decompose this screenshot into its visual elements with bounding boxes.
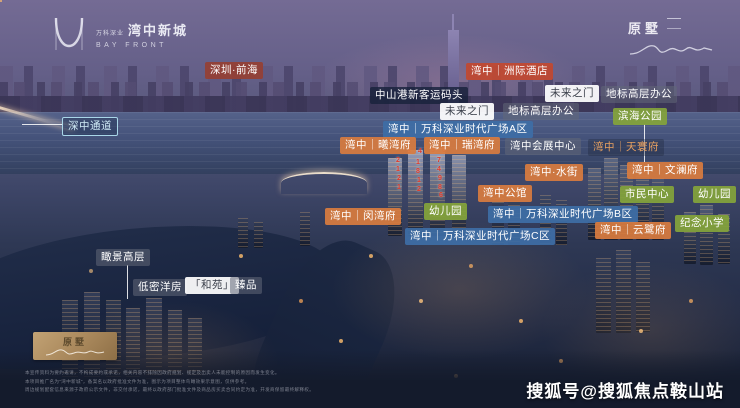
- yuanshu-gold-badge: 原墅: [33, 332, 117, 360]
- map-label: 瞰景高层: [96, 249, 150, 266]
- map-label: 湾中｜文澜府: [627, 162, 703, 179]
- disclaimer-line: 周边规划配套信息来源于政府公示文件，非交付承诺，最终以政府部门批准文件及商品房买…: [25, 387, 314, 393]
- building-number: 1: [416, 159, 420, 166]
- map-label: 市民中心: [620, 186, 674, 203]
- brand-group-name: 万科深业: [96, 28, 124, 37]
- building-number: 1: [397, 184, 401, 191]
- building-number: 7: [437, 157, 441, 164]
- map-label: 地标高层办公: [503, 103, 579, 120]
- tower-block: [616, 250, 631, 333]
- aerial-masterplan-rendering: 万科深业 湾中新城 BAY FRONT 原墅 深圳·前海中山港新客运码头湾中｜洲…: [0, 0, 740, 408]
- building-number: 2: [397, 175, 401, 182]
- map-label: 未来之门: [545, 85, 599, 102]
- building-number: 4: [418, 148, 422, 155]
- building-number: 1: [417, 177, 421, 184]
- map-label: 湾中会展中心: [505, 138, 581, 155]
- lit-bridge-arc: [281, 172, 367, 194]
- building-number: 6: [439, 192, 443, 199]
- map-label: 湾中｜瑞湾府: [424, 137, 500, 154]
- yuanshu-title: 原墅: [628, 21, 662, 36]
- map-label: 低密洋房: [133, 279, 187, 296]
- map-label: 湾中｜万科深业时代广场A区: [383, 121, 533, 138]
- brand-english-name: BAY FRONT: [96, 42, 188, 49]
- tower-block: [636, 262, 650, 332]
- map-label: 幼儿园: [693, 186, 736, 203]
- building-number: 4: [437, 166, 441, 173]
- tower-block: [238, 218, 248, 248]
- map-label: 湾中｜云鹭府: [595, 222, 671, 239]
- bridge-arch-icon: [52, 16, 86, 52]
- map-label: 未来之门: [440, 103, 494, 120]
- map-label: 湾中公馆: [478, 185, 532, 202]
- tower-block: [452, 155, 466, 235]
- tower-block: [700, 205, 713, 265]
- disclaimer-line: 本宣传资料为要约邀请，不构成要约或承诺，相关内容不排除因政府规划、规定及出卖人未…: [25, 370, 280, 376]
- map-label: 湾中｜万科深业时代广场C区: [405, 228, 555, 245]
- tower-block: [596, 258, 611, 333]
- building-number: 9: [438, 175, 442, 182]
- map-label: 滨海公园: [613, 108, 667, 125]
- building-number: 8: [416, 168, 420, 175]
- signature-swash-icon: [628, 38, 714, 60]
- map-label: 纪念小学: [675, 215, 729, 232]
- map-label: 湾中｜万科深业时代广场B区: [488, 206, 638, 223]
- map-label: 中山港新客运码头: [370, 87, 468, 104]
- sohu-watermark: 搜狐号@搜狐焦点鞍山站: [526, 377, 724, 402]
- tower-block: [300, 212, 310, 246]
- map-label: 臻品: [230, 277, 262, 294]
- building-number: 2: [417, 186, 421, 193]
- map-label: 地标高层办公: [601, 86, 677, 103]
- building-number: 1: [396, 166, 400, 173]
- tower-block: [254, 222, 263, 248]
- disclaimer-line: 本项目推广名为"湾中新城"，备案名以政府批准文件为准，图示为项目整体鸟瞰效果示意…: [25, 379, 250, 385]
- map-label: 深圳·前海: [205, 62, 263, 79]
- map-label: 湾中｜洲际酒店: [466, 63, 553, 80]
- leader-line: [22, 124, 62, 125]
- building-number: 8: [438, 184, 442, 191]
- map-label: 湾中｜闵湾府: [325, 208, 401, 225]
- leader-line: [127, 265, 128, 299]
- brand-project-name: 湾中新城: [128, 20, 188, 39]
- brand-logo-bayfront: 万科深业 湾中新城 BAY FRONT: [52, 16, 188, 52]
- yuanshu-seal-mark: [667, 18, 681, 29]
- map-label: 幼儿园: [424, 203, 467, 220]
- building-number: 2: [396, 157, 400, 164]
- map-label: 湾中·水街: [525, 164, 583, 181]
- map-label: 深中通道: [62, 117, 118, 136]
- brand-logo-yuanshu: 原墅: [628, 18, 718, 65]
- map-label: 湾中｜曦湾府: [340, 137, 416, 154]
- map-label: 湾中｜天寰府: [588, 139, 664, 156]
- street-lights: [0, 0, 2, 2]
